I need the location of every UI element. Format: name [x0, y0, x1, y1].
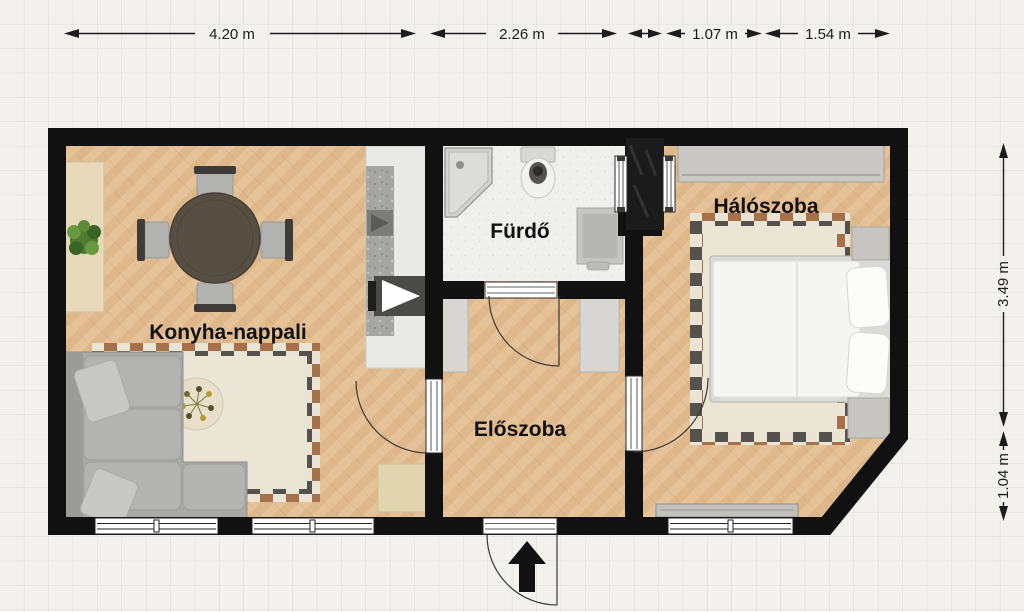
room-label-bath: Fürdő — [490, 220, 549, 243]
toilet — [521, 147, 555, 198]
entrance-door-jamb — [483, 518, 557, 534]
room-label-hall: Előszoba — [474, 418, 567, 441]
dimension-label-top-2: 2.26 m — [499, 26, 545, 43]
bedroom-wardrobe — [678, 145, 884, 182]
dimension-label-right-1: 3.49 m — [995, 261, 1012, 307]
kitchen-counter — [366, 146, 426, 368]
nightstand-bottom — [848, 398, 889, 438]
stove — [368, 276, 426, 316]
niche-window-left — [615, 156, 627, 212]
bed-pillow — [846, 332, 890, 395]
door-jamb-bath-hall — [485, 282, 557, 298]
door-jamb-living-hall — [426, 379, 442, 453]
doormat — [378, 464, 428, 512]
dimension-label-top-1: 4.20 m — [209, 26, 255, 43]
dimension-label-top-3: 1.07 m — [692, 26, 738, 43]
niche-window-right — [663, 156, 675, 212]
window-bedroom — [668, 518, 793, 534]
floorplan-drawing: 4.20 m 2.26 m 1.07 m 1.54 m 3.49 m 1.04 … — [0, 0, 1024, 612]
hall-cabinet-right — [580, 298, 619, 372]
bathroom-vanity — [577, 208, 623, 270]
room-label-bedroom: Hálószoba — [713, 195, 818, 218]
window-living-2 — [252, 518, 374, 534]
bed — [710, 256, 892, 402]
duvet — [713, 261, 860, 397]
dimension-label-top-4: 1.54 m — [805, 26, 851, 43]
bed-pillow — [846, 266, 890, 329]
floorplan-canvas: 4.20 m 2.26 m 1.07 m 1.54 m 3.49 m 1.04 … — [0, 0, 1024, 612]
kitchen-sink — [367, 210, 393, 236]
dining-table — [170, 193, 260, 283]
room-label-living: Konyha-nappali — [149, 321, 307, 344]
window-living-1 — [95, 518, 218, 534]
dimension-label-right-2: 1.04 m — [995, 453, 1012, 499]
radiator — [656, 504, 798, 517]
nightstand-top — [852, 227, 889, 260]
door-jamb-hall-bedroom — [626, 376, 642, 451]
